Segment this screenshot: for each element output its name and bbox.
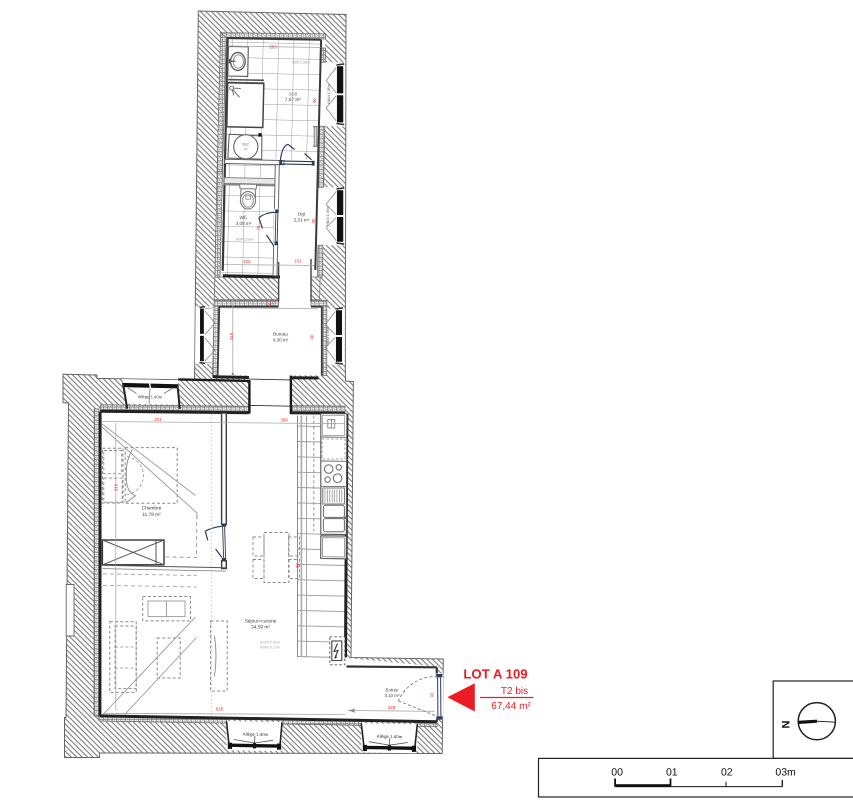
- svg-text:Chambre: Chambre: [142, 506, 162, 512]
- svg-text:Dgt: Dgt: [298, 212, 306, 217]
- svg-text:398: 398: [280, 418, 288, 423]
- svg-text:90: 90: [295, 563, 300, 568]
- svg-text:2,31 m²: 2,31 m²: [294, 218, 310, 223]
- svg-text:HBAt 1,05m: HBAt 1,05m: [327, 84, 331, 103]
- svg-text:93: 93: [430, 692, 435, 697]
- svg-text:3,08 m²: 3,08 m²: [236, 221, 252, 226]
- svg-text:67,44 m²: 67,44 m²: [491, 701, 531, 712]
- svg-text:316: 316: [113, 483, 118, 491]
- svg-text:Allège 1,40m: Allège 1,40m: [377, 734, 403, 740]
- svg-text:00: 00: [611, 766, 623, 778]
- svg-text:Entrée: Entrée: [386, 688, 399, 693]
- svg-text:Allège 1,40m: Allège 1,40m: [138, 394, 163, 400]
- svg-text:11,79 m²: 11,79 m²: [142, 512, 161, 518]
- svg-text:01: 01: [666, 766, 678, 778]
- svg-text:90: 90: [312, 98, 317, 103]
- svg-text:HSP 2,50m: HSP 2,50m: [236, 238, 254, 242]
- svg-text:243: 243: [266, 302, 274, 307]
- svg-text:4,30 m²: 4,30 m²: [273, 338, 289, 343]
- svg-text:73: 73: [256, 225, 261, 230]
- svg-text:HBAt 1,05m: HBAt 1,05m: [326, 326, 330, 345]
- svg-text:Bureau: Bureau: [273, 332, 288, 337]
- svg-text:7,07 m²: 7,07 m²: [285, 97, 302, 103]
- svg-text:34,59 m²: 34,59 m²: [251, 625, 270, 631]
- svg-text:SEC: SEC: [242, 143, 250, 147]
- svg-text:HSPo 5,27m: HSPo 5,27m: [260, 646, 280, 650]
- svg-text:LOT A 109: LOT A 109: [463, 667, 527, 682]
- svg-text:T2 bis: T2 bis: [501, 686, 528, 697]
- svg-text:203: 203: [269, 45, 277, 50]
- svg-text:318: 318: [229, 332, 234, 340]
- svg-text:N: N: [781, 720, 793, 728]
- svg-text:626: 626: [216, 706, 224, 711]
- svg-text:SDB: SDB: [288, 92, 297, 97]
- svg-text:101: 101: [294, 259, 302, 264]
- svg-text:HSP 2,50m: HSP 2,50m: [292, 61, 310, 65]
- svg-text:03m: 03m: [775, 766, 796, 778]
- svg-text:02: 02: [721, 766, 733, 778]
- svg-text:LL: LL: [244, 147, 248, 151]
- svg-text:201: 201: [154, 417, 162, 422]
- svg-text:Séjour+cuisine: Séjour+cuisine: [245, 619, 277, 625]
- svg-text:102: 102: [243, 259, 251, 264]
- svg-text:3,10 m²: 3,10 m²: [385, 693, 400, 698]
- svg-text:Allège 1,40m: Allège 1,40m: [243, 732, 269, 738]
- svg-text:HBAt 1,05m: HBAt 1,05m: [326, 206, 330, 225]
- svg-text:90: 90: [311, 218, 316, 223]
- svg-text:228: 228: [388, 705, 396, 710]
- svg-text:90: 90: [310, 334, 315, 339]
- svg-text:HSFP 2,60m: HSFP 2,60m: [260, 641, 281, 645]
